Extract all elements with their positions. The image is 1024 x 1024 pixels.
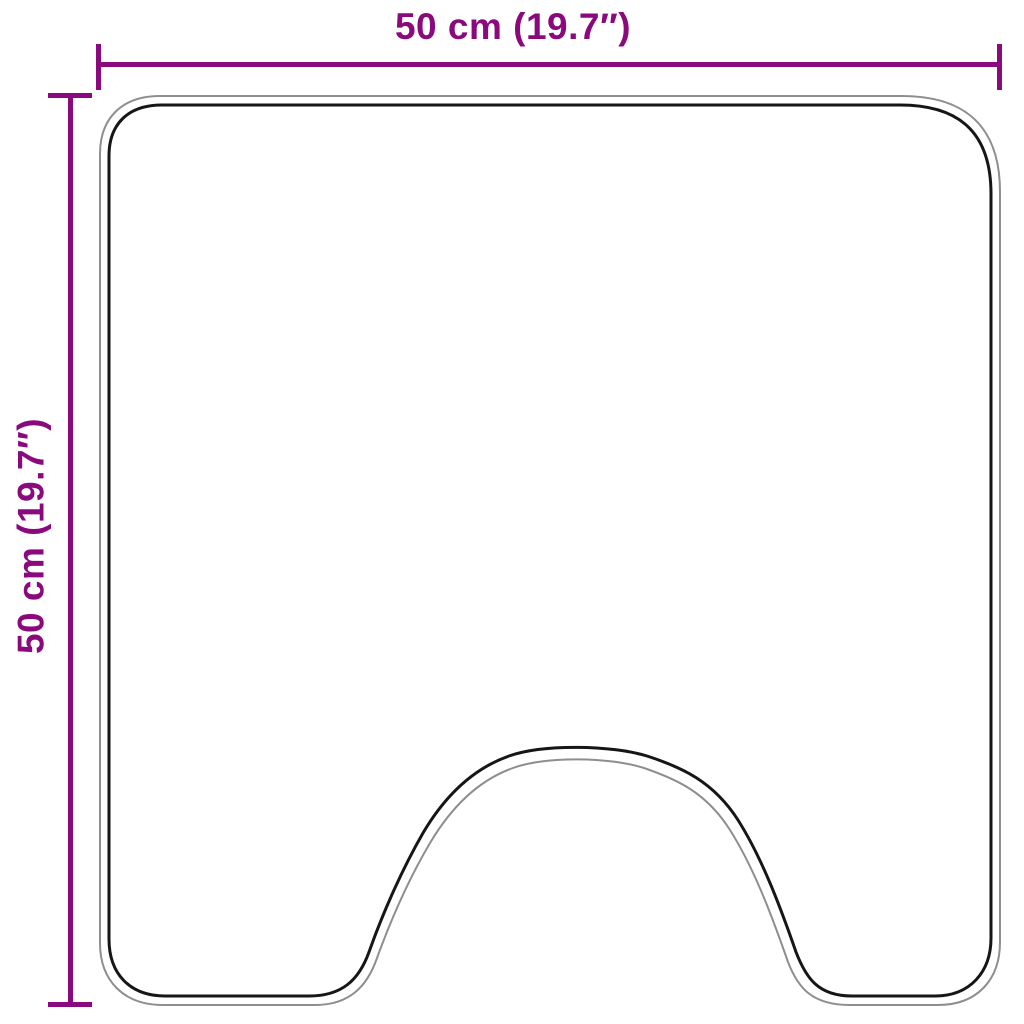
width-dimension-tick-left <box>96 44 101 90</box>
mat-inner-outline-path <box>109 105 991 996</box>
height-dimension-label: 50 cm (19.7″) <box>13 418 50 654</box>
width-dimension-tick-right <box>997 44 1002 90</box>
height-dimension-tick-bottom <box>48 1002 92 1007</box>
width-dimension-label: 50 cm (19.7″) <box>395 8 631 45</box>
height-dimension-line <box>68 95 73 1006</box>
mat-outline-drawing <box>0 0 1024 1024</box>
mat-outer-outline-path <box>100 96 1000 1005</box>
height-dimension-tick-top <box>48 93 92 98</box>
width-dimension-line <box>98 62 1001 67</box>
dimension-diagram: 50 cm (19.7″) 50 cm (19.7″) <box>0 0 1024 1024</box>
